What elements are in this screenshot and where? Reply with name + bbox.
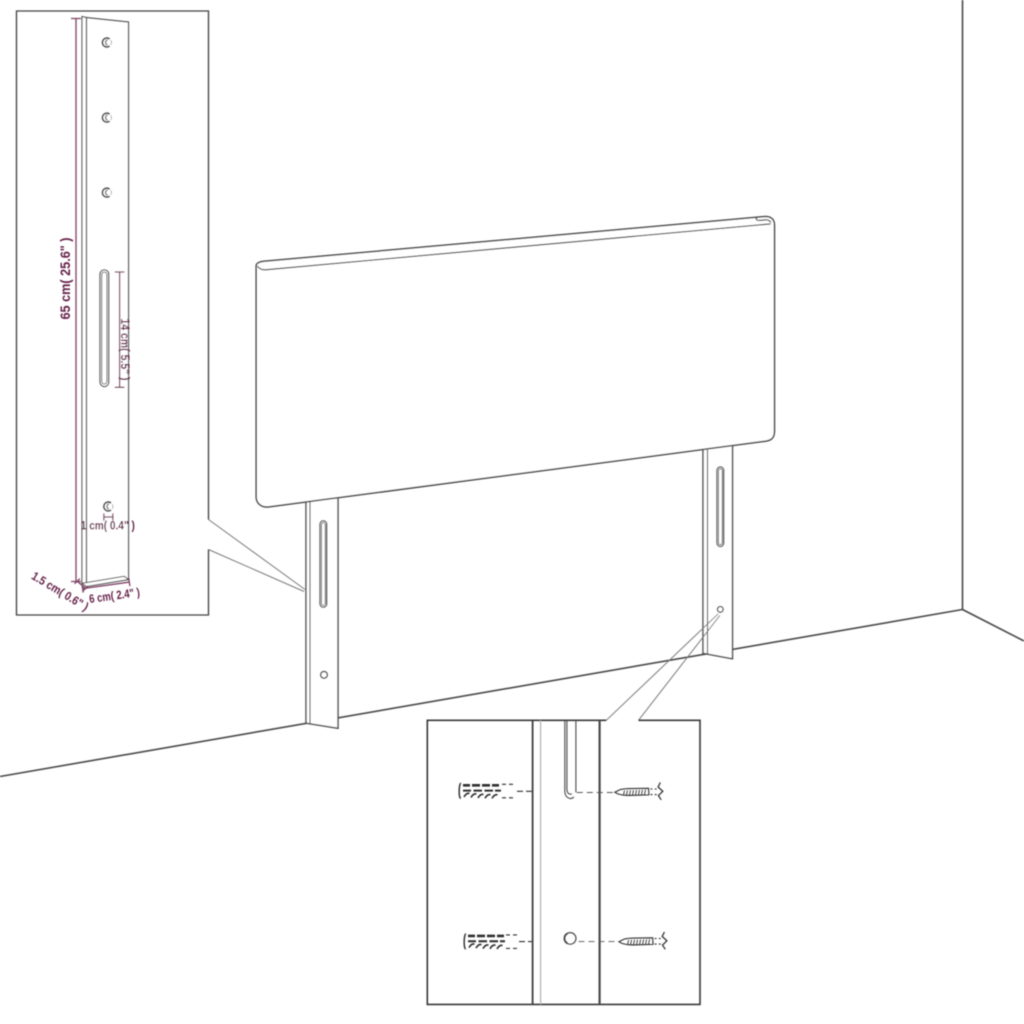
svg-text:14 cm( 5.5" ): 14 cm( 5.5" ): [118, 319, 132, 381]
svg-text:6 cm( 2.4" ): 6 cm( 2.4" ): [88, 585, 140, 606]
svg-text:1 cm( 0.4" ): 1 cm( 0.4" ): [81, 519, 135, 533]
svg-text:65 cm( 25.6" ): 65 cm( 25.6" ): [57, 238, 73, 320]
